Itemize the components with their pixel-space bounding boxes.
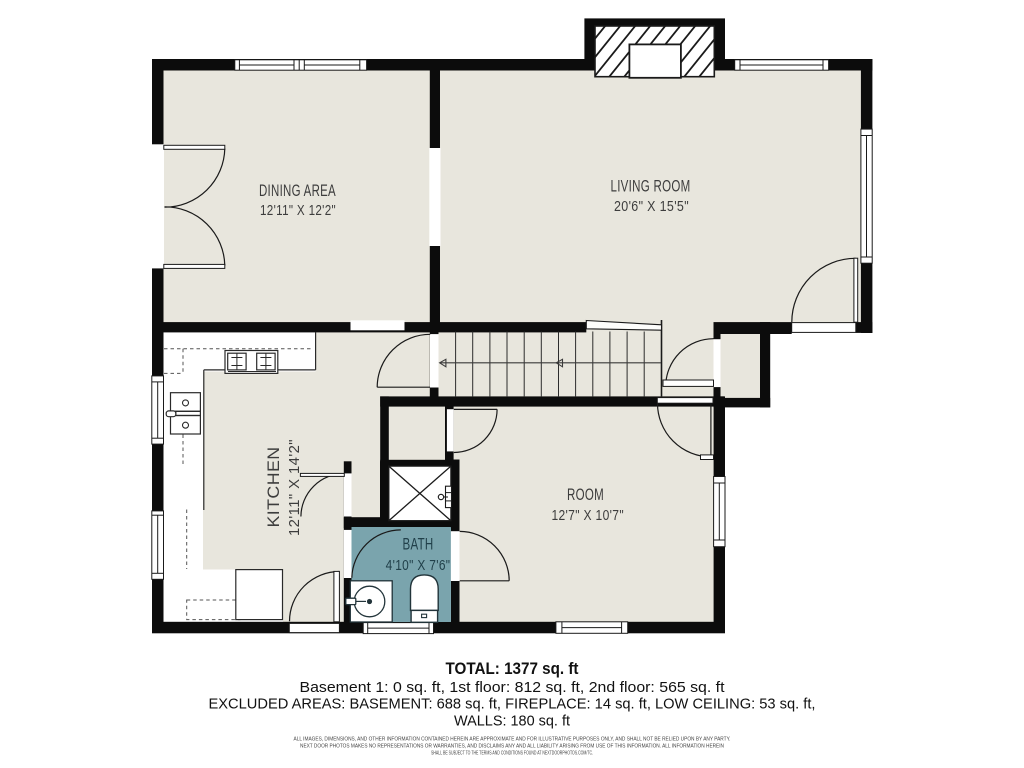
svg-text:LIVING ROOM: LIVING ROOM bbox=[611, 178, 691, 196]
svg-text:ALL IMAGES, DIMENSIONS, AND OT: ALL IMAGES, DIMENSIONS, AND OTHER INFORM… bbox=[294, 737, 731, 743]
svg-text:BATH: BATH bbox=[403, 536, 434, 554]
svg-text:12'7" X 10'7": 12'7" X 10'7" bbox=[551, 508, 624, 524]
svg-text:ROOM: ROOM bbox=[567, 486, 604, 504]
svg-text:20'6" X 15'5": 20'6" X 15'5" bbox=[614, 199, 689, 215]
svg-text:SHALL BE SUBJECT TO THE TERMS: SHALL BE SUBJECT TO THE TERMS AND CONDIT… bbox=[431, 751, 593, 757]
svg-text:WALLS: 180 sq. ft: WALLS: 180 sq. ft bbox=[454, 713, 571, 730]
svg-text:KITCHEN: KITCHEN bbox=[265, 447, 283, 528]
svg-text:12'11" X 12'2": 12'11" X 12'2" bbox=[260, 203, 336, 219]
svg-text:DINING AREA: DINING AREA bbox=[259, 182, 336, 200]
svg-text:NEXT DOOR PHOTOS MAKES NO REPR: NEXT DOOR PHOTOS MAKES NO REPRESENTATION… bbox=[300, 744, 724, 750]
svg-text:TOTAL: 1377 sq. ft: TOTAL: 1377 sq. ft bbox=[446, 659, 579, 678]
svg-text:Basement 1: 0 sq. ft, 1st floo: Basement 1: 0 sq. ft, 1st floor: 812 sq.… bbox=[300, 679, 726, 696]
svg-text:12'11" X 14'2": 12'11" X 14'2" bbox=[287, 439, 303, 536]
svg-text:EXCLUDED AREAS: BASEMENT: 688: EXCLUDED AREAS: BASEMENT: 688 sq. ft, FI… bbox=[209, 696, 816, 713]
svg-text:4'10" X 7'6": 4'10" X 7'6" bbox=[386, 558, 451, 574]
